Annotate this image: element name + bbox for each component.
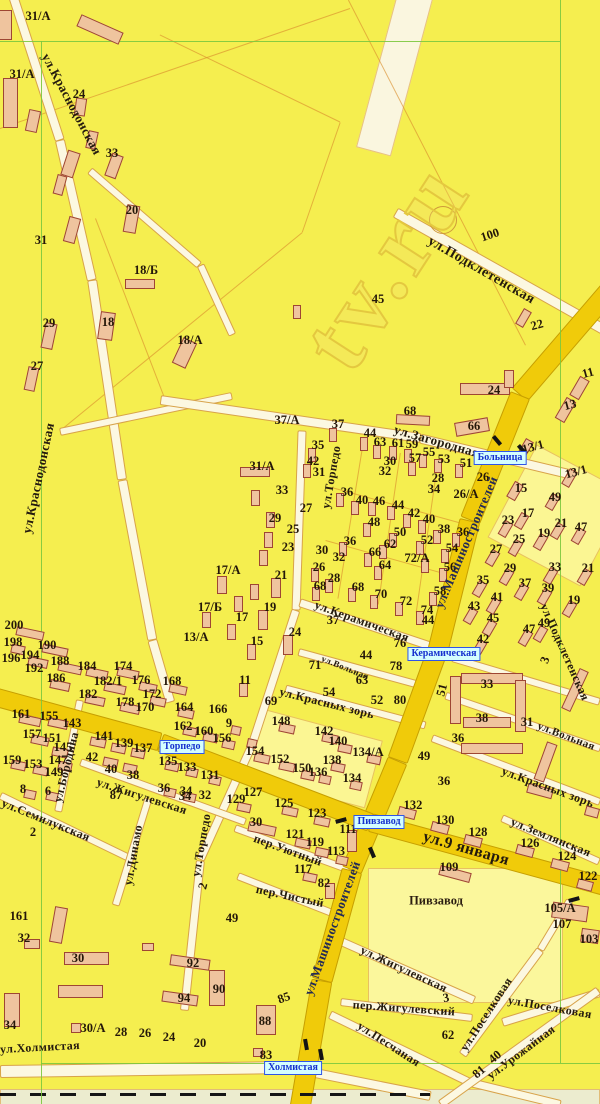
- parcel-line: [160, 35, 340, 123]
- house-number: 32: [18, 932, 31, 945]
- house-number: 188: [51, 655, 70, 668]
- house-number: 166: [209, 703, 228, 716]
- house-number: 192: [25, 662, 44, 675]
- house-number: 18/Б: [134, 264, 158, 277]
- house-number: 36: [158, 782, 171, 795]
- house-number: 47: [523, 623, 536, 636]
- building: [217, 576, 227, 594]
- house-number: 25: [287, 523, 300, 536]
- street-name-label: ул.Красных зорь: [500, 765, 595, 810]
- building: [58, 985, 103, 998]
- house-number: 27: [490, 543, 503, 556]
- house-number: 135: [159, 755, 178, 768]
- house-number: 103: [580, 933, 599, 946]
- building: [142, 943, 154, 951]
- neatline: [0, 41, 560, 42]
- house-number: 88: [259, 1015, 272, 1028]
- house-number: 62: [442, 1029, 455, 1042]
- house-number: 13/А: [184, 631, 209, 644]
- house-number: 45: [372, 293, 385, 306]
- house-number: 31: [521, 716, 534, 729]
- house-number: 34: [4, 1019, 17, 1032]
- house-number: 26/А: [454, 488, 479, 501]
- house-number: 172: [143, 688, 162, 701]
- house-number: 159: [3, 754, 22, 767]
- street-name-label: ул.Холмистая: [0, 1039, 80, 1055]
- house-number: 164: [175, 701, 194, 714]
- house-number: 44: [392, 499, 405, 512]
- house-number: 68: [314, 580, 327, 593]
- house-number: 49: [418, 750, 431, 763]
- building: [264, 532, 273, 548]
- house-number: 123: [308, 807, 327, 820]
- house-number: 39: [542, 582, 555, 595]
- house-number: 100: [479, 226, 501, 244]
- house-number: 40: [423, 513, 436, 526]
- house-number: 33: [106, 147, 119, 160]
- house-number: 29: [504, 562, 517, 575]
- house-number: 32: [379, 465, 392, 478]
- house-number: 17: [522, 507, 535, 520]
- building: [64, 952, 109, 965]
- road-segment-minor: [87, 167, 202, 268]
- house-number: 71: [309, 659, 322, 672]
- house-number: 38: [127, 769, 140, 782]
- house-number: 70: [375, 588, 388, 601]
- house-number: 143: [63, 717, 82, 730]
- house-number: 21: [555, 517, 568, 530]
- house-number: 68: [404, 405, 417, 418]
- house-number: 19: [264, 601, 277, 614]
- house-number: 113: [327, 845, 345, 858]
- house-number: 66: [468, 420, 481, 433]
- house-number: 27: [300, 502, 313, 515]
- house-number: 28: [328, 572, 341, 585]
- road-segment-minor: [117, 479, 157, 641]
- building: [227, 624, 236, 640]
- building: [0, 10, 12, 40]
- poi-badge[interactable]: Пивзавод: [353, 815, 404, 829]
- house-number: 18: [102, 316, 115, 329]
- house-number: 34: [428, 483, 441, 496]
- house-number: 155: [40, 710, 59, 723]
- house-number: 194: [21, 649, 40, 662]
- house-number: 38: [438, 523, 451, 536]
- house-number: 42: [408, 507, 421, 520]
- house-number: 66: [369, 546, 382, 559]
- road-segment-minor: [59, 392, 233, 436]
- house-number: 35: [312, 439, 325, 452]
- building: [250, 584, 259, 600]
- road-segment-minor: [291, 430, 306, 610]
- house-number: 196: [2, 652, 21, 665]
- house-number: 30/А: [81, 1022, 106, 1035]
- house-number: 90: [213, 983, 226, 996]
- house-number: 31/А: [26, 10, 51, 23]
- house-number: 131: [201, 769, 220, 782]
- house-number: 152: [271, 753, 290, 766]
- road-segment-minor: [196, 263, 235, 336]
- poi-badge[interactable]: Керамическая: [407, 647, 480, 661]
- house-number: 30: [72, 952, 85, 965]
- house-number: 24: [163, 1031, 176, 1044]
- house-number: 133: [178, 761, 197, 774]
- house-number: 21: [582, 562, 595, 575]
- house-number: 52: [421, 534, 434, 547]
- house-number: 134: [343, 772, 362, 785]
- house-number: 35: [477, 574, 490, 587]
- building: [504, 370, 514, 388]
- house-number: 32: [199, 789, 212, 802]
- area-label: Пивзавод: [409, 894, 463, 909]
- building: [125, 279, 155, 289]
- house-number: 49: [549, 491, 562, 504]
- building: [202, 612, 211, 628]
- house-number: 52: [371, 694, 384, 707]
- house-number: 182: [79, 688, 98, 701]
- house-number: 44: [422, 614, 435, 627]
- map-canvas[interactable]: tv.ruул.Краснодонскаяул.Краснодонскаяул.…: [0, 0, 600, 1104]
- building: [251, 490, 260, 506]
- house-number: 26: [139, 1027, 152, 1040]
- house-number: 3: [538, 655, 552, 665]
- house-number: 46: [373, 495, 386, 508]
- house-number: 23: [502, 514, 515, 527]
- house-number: 13: [562, 397, 577, 412]
- house-number: 24: [289, 626, 302, 639]
- house-number: 11: [581, 365, 596, 380]
- house-number: 33: [481, 678, 494, 691]
- house-number: 92: [187, 957, 200, 970]
- house-number: 174: [114, 660, 133, 673]
- house-number: 128: [469, 826, 488, 839]
- house-number: 17/Б: [198, 601, 222, 614]
- house-number: 9: [226, 717, 232, 730]
- house-number: 30: [316, 544, 329, 557]
- street-name-label: ул.Песчаная: [356, 1019, 423, 1068]
- house-number: 40: [356, 494, 369, 507]
- house-number: 119: [306, 836, 324, 849]
- house-number: 20: [194, 1037, 207, 1050]
- house-number: 40: [105, 763, 118, 776]
- street-name-label: пер.Чистый: [255, 883, 325, 909]
- house-number: 57: [409, 452, 422, 465]
- house-number: 190: [38, 639, 57, 652]
- house-number: 48: [368, 516, 381, 529]
- house-number: 107: [553, 918, 572, 931]
- house-number: 17/А: [216, 564, 241, 577]
- house-number: 160: [195, 725, 214, 738]
- building: [259, 550, 268, 566]
- house-number: 162: [174, 720, 193, 733]
- house-number: 85: [276, 990, 292, 1006]
- house-number: 72/А: [405, 552, 430, 565]
- house-number: 186: [47, 672, 66, 685]
- house-number: 47: [575, 521, 588, 534]
- house-number: 170: [136, 701, 155, 714]
- house-number: 45: [487, 612, 500, 625]
- house-number: 78: [390, 660, 403, 673]
- building: [461, 743, 523, 754]
- house-number: 15: [251, 635, 264, 648]
- house-number: 72: [400, 595, 413, 608]
- house-number: 80: [394, 694, 407, 707]
- parcel-line: [302, 122, 341, 232]
- house-number: 130: [436, 814, 455, 827]
- road-segment-major: [290, 978, 333, 1104]
- house-number: 94: [178, 992, 191, 1005]
- house-number: 153: [24, 758, 43, 771]
- parcel-line: [337, 450, 362, 598]
- house-number: 19: [538, 527, 551, 540]
- house-number: 82: [318, 877, 331, 890]
- house-number: 148: [272, 715, 291, 728]
- house-number: 140: [329, 735, 348, 748]
- house-number: 43: [468, 600, 481, 613]
- building: [3, 78, 18, 128]
- house-number: 17: [236, 611, 249, 624]
- house-number: 33: [276, 484, 289, 497]
- house-number: 161: [12, 708, 31, 721]
- house-number: 182/1: [94, 675, 122, 688]
- house-number: 168: [163, 675, 182, 688]
- house-number: 122: [579, 870, 598, 883]
- house-number: 36: [438, 775, 451, 788]
- house-number: 41: [491, 591, 504, 604]
- house-number: 83: [260, 1049, 273, 1062]
- house-number: 37: [519, 577, 532, 590]
- house-number: 22: [529, 317, 544, 332]
- house-number: 37/А: [275, 414, 300, 427]
- house-number: 125: [275, 797, 294, 810]
- house-number: 31: [35, 234, 48, 247]
- house-number: 36: [344, 535, 357, 548]
- house-number: 31/А: [10, 68, 35, 81]
- building: [48, 906, 67, 944]
- house-number: 178: [116, 696, 135, 709]
- building: [71, 1023, 81, 1033]
- house-number: 136: [309, 766, 328, 779]
- house-number: 11: [239, 674, 251, 687]
- house-number: 129: [227, 793, 246, 806]
- house-number: 200: [5, 619, 24, 632]
- poi-badge[interactable]: Холмистая: [264, 1061, 322, 1075]
- house-number: 109: [440, 861, 459, 874]
- house-number: 30: [250, 816, 263, 829]
- house-number: 15: [515, 482, 528, 495]
- house-number: 19: [568, 594, 581, 607]
- house-number: 31/А: [250, 460, 275, 473]
- house-number: 25: [513, 533, 526, 546]
- poi-badge[interactable]: Торпедо: [160, 740, 205, 754]
- house-number: 6: [45, 785, 51, 798]
- house-number: 184: [78, 660, 97, 673]
- railway-line: [0, 1093, 430, 1096]
- house-number: 27: [31, 360, 44, 373]
- house-number: 137: [134, 742, 153, 755]
- house-number: 69: [265, 695, 278, 708]
- building: [515, 308, 532, 328]
- house-number: 62: [384, 538, 397, 551]
- house-number: 161: [10, 910, 29, 923]
- house-number: 156: [213, 732, 232, 745]
- house-number: 139: [115, 737, 134, 750]
- house-number: 44: [360, 649, 373, 662]
- house-number: 33: [549, 561, 562, 574]
- house-number: 68: [352, 581, 365, 594]
- house-number: 132: [404, 799, 423, 812]
- house-number: 20: [126, 204, 139, 217]
- house-number: 42: [86, 751, 99, 764]
- building: [460, 383, 510, 395]
- house-number: 134/А: [352, 746, 383, 759]
- house-number: 32: [333, 551, 346, 564]
- house-number: 49: [226, 912, 239, 925]
- house-number: 38: [476, 712, 489, 725]
- street-name-label: ул.Динамо: [122, 824, 144, 886]
- street-name-label: ул.Краснодонская: [20, 421, 56, 534]
- house-number: 24: [488, 384, 501, 397]
- house-number: 198: [4, 636, 23, 649]
- street-name-label: ул.Семилукская: [0, 797, 92, 843]
- house-number: 53: [438, 453, 451, 466]
- house-number: 29: [269, 512, 282, 525]
- poi-badge[interactable]: Больница: [474, 451, 527, 465]
- house-number: 141: [95, 730, 114, 743]
- land-parcel: [368, 868, 563, 1003]
- house-number: 36: [452, 732, 465, 745]
- land-parcel: [356, 0, 440, 156]
- house-number: 37: [332, 418, 345, 431]
- bus-stop-marker: [318, 1048, 324, 1060]
- house-number: 105/А: [544, 902, 575, 915]
- house-number: 18/А: [178, 334, 203, 347]
- house-number: 121: [286, 828, 305, 841]
- house-number: 51: [434, 682, 449, 697]
- house-number: 64: [379, 559, 392, 572]
- house-number: 8: [20, 783, 26, 796]
- house-number: 28: [115, 1026, 128, 1039]
- house-number: 23: [282, 541, 295, 554]
- house-number: 42: [477, 633, 490, 646]
- house-number: 36: [341, 486, 354, 499]
- bus-stop-marker: [368, 846, 376, 858]
- house-number: 154: [246, 745, 265, 758]
- house-number: 2: [30, 826, 36, 839]
- building: [450, 676, 461, 724]
- house-number: 29: [43, 317, 56, 330]
- neatline: [41, 41, 42, 1104]
- house-number: 176: [132, 674, 151, 687]
- house-number: 26: [313, 561, 326, 574]
- building: [25, 109, 41, 133]
- house-number: 63: [374, 436, 387, 449]
- house-number: 127: [244, 786, 263, 799]
- house-number: 21: [275, 569, 288, 582]
- house-number: 157: [23, 728, 42, 741]
